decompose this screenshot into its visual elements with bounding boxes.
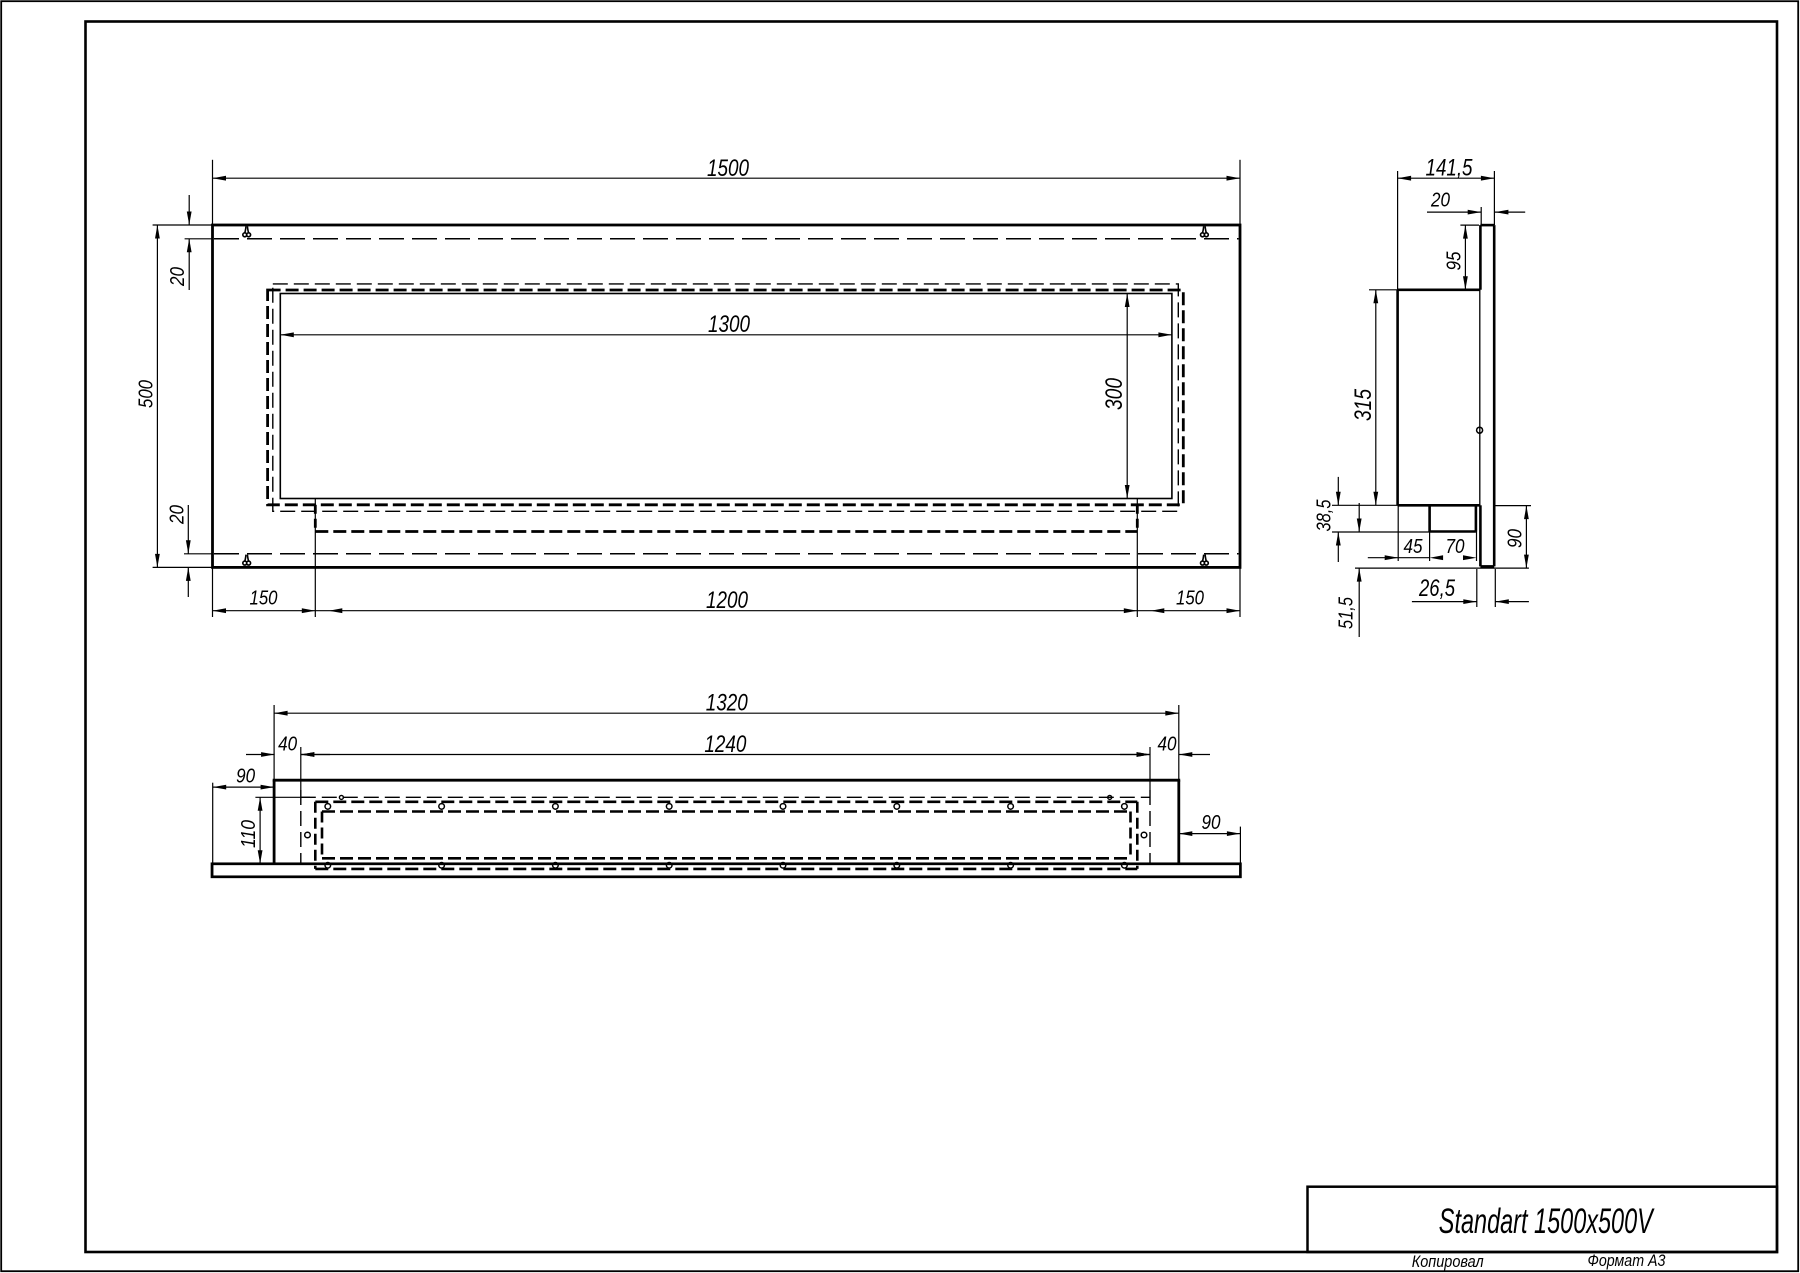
svg-text:90: 90 (1503, 529, 1526, 548)
svg-text:150: 150 (1176, 587, 1204, 610)
svg-text:90: 90 (1202, 811, 1221, 834)
svg-text:1240: 1240 (704, 731, 747, 758)
svg-text:1500: 1500 (707, 155, 750, 182)
svg-text:51,5: 51,5 (1335, 597, 1358, 629)
svg-text:Копировал: Копировал (1412, 1253, 1484, 1271)
svg-text:150: 150 (250, 587, 278, 610)
svg-text:300: 300 (1101, 377, 1128, 410)
svg-text:20: 20 (166, 267, 189, 287)
svg-text:40: 40 (1158, 733, 1177, 756)
svg-text:38,5: 38,5 (1312, 499, 1335, 531)
svg-text:45: 45 (1404, 535, 1423, 558)
svg-text:20: 20 (165, 505, 188, 525)
svg-text:1320: 1320 (706, 690, 749, 717)
svg-text:1300: 1300 (708, 311, 751, 338)
svg-text:90: 90 (236, 765, 255, 788)
svg-text:Standart 1500x500V: Standart 1500x500V (1439, 1202, 1655, 1241)
svg-text:70: 70 (1446, 535, 1465, 558)
svg-text:26,5: 26,5 (1418, 575, 1455, 602)
svg-text:1200: 1200 (706, 587, 749, 614)
svg-text:315: 315 (1350, 388, 1377, 421)
svg-text:95: 95 (1442, 251, 1465, 270)
svg-text:40: 40 (278, 733, 297, 756)
svg-text:20: 20 (1430, 189, 1450, 212)
svg-text:141,5: 141,5 (1426, 155, 1474, 182)
svg-text:Формат А3: Формат А3 (1588, 1252, 1667, 1270)
svg-text:110: 110 (237, 819, 260, 848)
svg-text:500: 500 (134, 380, 157, 408)
